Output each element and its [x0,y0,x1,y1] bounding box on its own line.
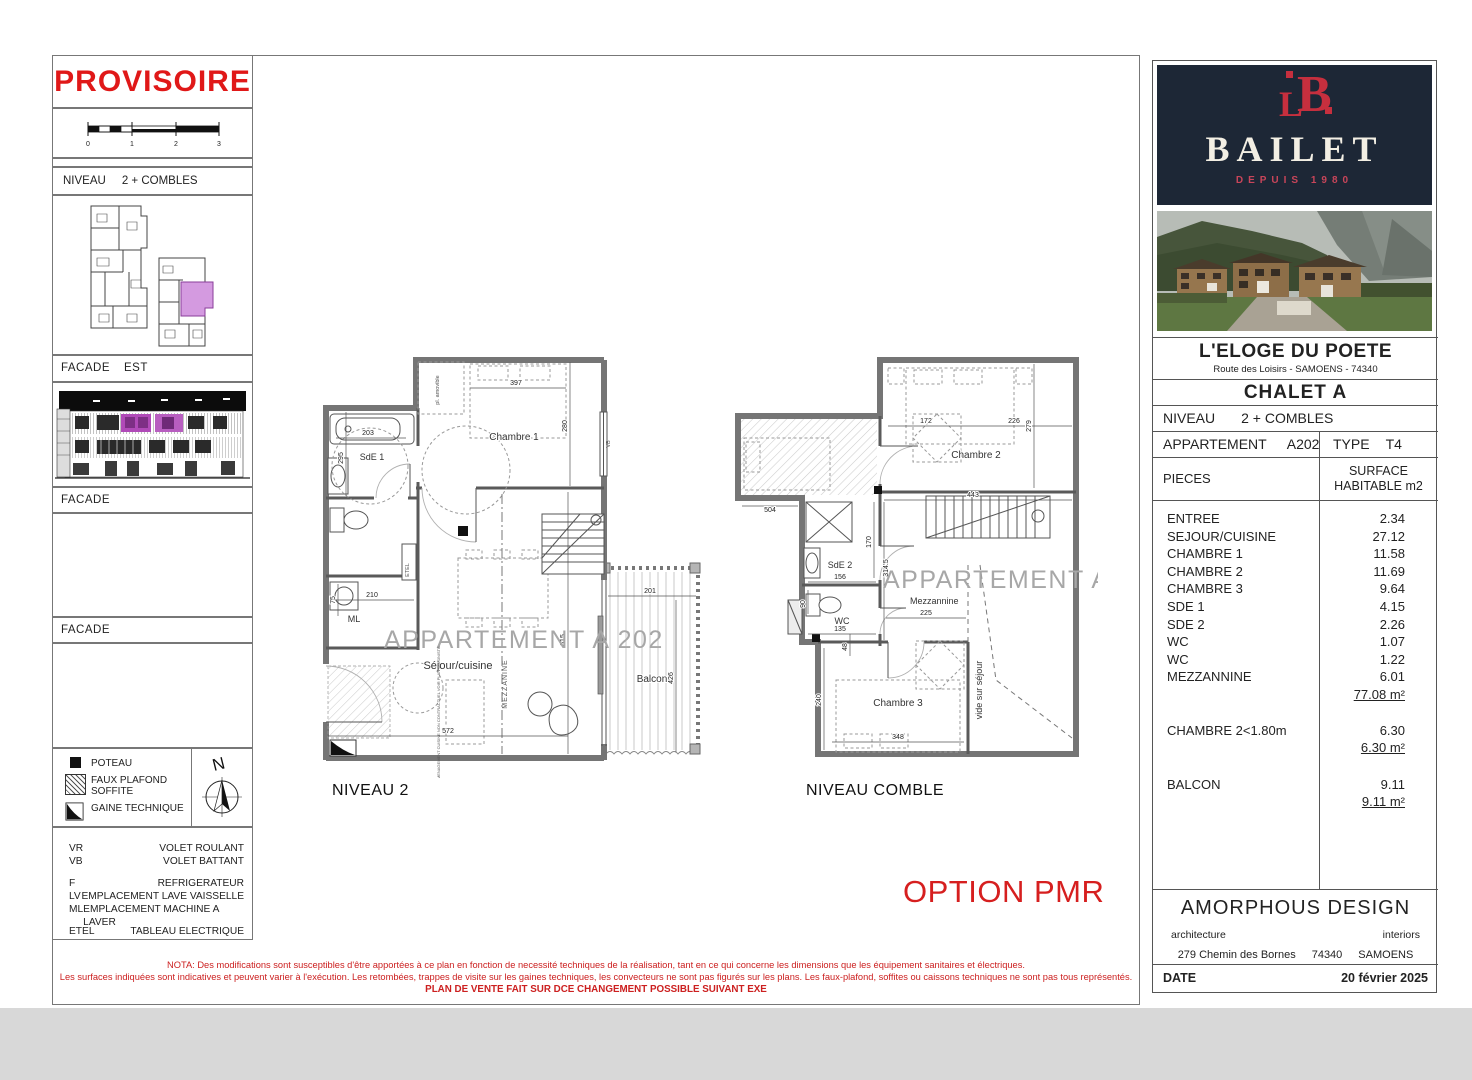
facade-est-label: FACADE [61,362,110,374]
dim: 48 [842,643,849,651]
niveau-row: NIVEAU2 + COMBLES [1153,405,1438,431]
apartment-label: APPARTEMENT [1163,436,1267,452]
designer-interiors: interiors [1383,929,1420,941]
abbrev-row: FREFRIGERATEUR [53,877,252,890]
room-label-sde2: SdE 2 [828,560,853,570]
designer-city: SAMOENS [1358,949,1413,961]
abbrev-key: VB [69,855,83,868]
dim: 348 [892,734,904,741]
table-row: WC1.07 [1153,633,1438,651]
dim: 504 [764,507,776,514]
dim: 90 [800,600,807,608]
niveau-value: 2 + COMBLES [1241,410,1333,426]
dim: 280 [562,420,569,432]
label-placard: pl. amovible [435,375,441,404]
abbrev-label: EMPLACEMENT MACHINE A LAVER [83,903,244,916]
room-label-sejour: Séjour/cuisine [423,660,492,672]
column-divider [1319,431,1320,500]
dim: 397 [510,380,522,387]
dim: 240 [816,694,823,706]
facade-2-empty-box [52,513,253,617]
north-compass-cell: N [191,749,253,826]
scale-tick-0: 0 [86,141,90,148]
scale-tick-2: 2 [174,141,178,148]
legend-label: GAINE TECHNIQUE [91,802,191,814]
abbrev-label: VOLET ROULANT [159,842,244,855]
attic-row: CHAMBRE 2<1.80m6.30 [1153,722,1438,740]
dim: 135 [834,626,846,633]
nota-footer: NOTA: Des modifications sont susceptible… [57,959,1135,995]
abbrev-row: ETELTABLEAU ELECTRIQUE [53,925,252,938]
date-value: 20 février 2025 [1341,965,1428,992]
legend-label: FAUX PLAFOND SOFFITE [91,774,191,797]
label-vide-sur-sejour: vide sur séjour [974,661,984,720]
room-label-wc: WC [835,616,850,626]
scale-tick-3: 3 [217,141,221,148]
dim: 226 [1008,418,1020,425]
table-row: SDE 22.26 [1153,616,1438,634]
plan-caption-comble: NIVEAU COMBLE [806,782,944,800]
project-name: L'ELOGE DU POETE [1153,341,1438,363]
facade-2-label: FACADE [61,494,110,506]
poteau-symbol [458,526,468,536]
type-label: TYPE [1333,436,1370,452]
abbrev-label: EMPLACEMENT LAVE VAISSELLE [82,890,245,903]
dim: 279 [1026,420,1033,432]
abbrev-row: LVEMPLACEMENT LAVE VAISSELLE [53,890,252,903]
provisoire-stamp: PROVISOIRE [52,55,253,108]
designer-zip: 74340 [1312,949,1343,961]
balcon-total-row: 9.11 m² [1153,793,1438,811]
room-label-chambre3: Chambre 3 [873,698,923,709]
option-pmr-label: OPTION PMR [903,874,1104,910]
key-plan-box [52,195,253,355]
logo-name: BAILET [1157,129,1432,169]
pieces-label: PIECES [1163,471,1211,486]
table-row: ENTREE2.34 [1153,510,1438,528]
facade-3-label: FACADE [61,624,110,636]
room-area-table: ENTREE2.34 SEJOUR/CUISINE27.12 CHAMBRE 1… [1153,500,1438,889]
facade-est-value: EST [124,362,148,374]
table-row: WC1.22 [1153,651,1438,669]
facade-est-label-box: FACADEEST [52,355,253,382]
facade-est-drawing-box [52,382,253,487]
table-row: CHAMBRE 111.58 [1153,545,1438,563]
label-ml: ML [348,614,361,624]
abbrev-label: VOLET BATTANT [163,855,244,868]
abbrev-row: VRVOLET ROULANT [53,842,252,855]
balcon-row: BALCON9.11 [1153,776,1438,794]
facade-est-drawing [53,383,252,486]
facade-3-empty-box [52,643,253,748]
designer-architecture: architecture [1171,929,1226,941]
watermark: APPARTEMENT A 202 [883,566,1098,594]
attic-total-row: 6.30 m² [1153,739,1438,757]
floor-plan-comble: 172 226 279 504 443 314.5 156 170 135 90… [728,350,1098,770]
legend-label: POTEAU [91,757,191,769]
project-row: L'ELOGE DU POETE Route des Loisirs - SAM… [1153,337,1438,379]
project-photo [1157,211,1432,331]
dim: 201 [644,588,656,595]
apartment-value: A202 [1287,436,1320,452]
legend-box: POTEAU FAUX PLAFOND SOFFITE GAINE TECHNI… [52,748,253,827]
dim: 426 [668,672,675,684]
poteau-icon [65,757,91,768]
dim: 443 [967,492,979,499]
abbrev-key: ETEL [69,925,94,938]
dim: 170 [866,536,873,548]
abbrev-key: VR [69,842,83,855]
dim: 295 [338,452,345,464]
table-row: MEZZANNINE6.01 [1153,668,1438,686]
legend-item-faux-plafond: FAUX PLAFOND SOFFITE [65,774,191,797]
level-value: 2 + COMBLES [122,175,198,187]
nota-line-3: PLAN DE VENTE FAIT SUR DCE CHANGEMENT PO… [57,984,1135,995]
abbrev-row: VBVOLET BATTANT [53,855,252,868]
bailet-monogram-icon: L B [1157,65,1432,129]
nota-line-1: NOTA: Des modifications sont susceptible… [57,959,1135,971]
facade-2-label-box: FACADE [52,487,253,513]
scale-tick-1: 1 [130,141,134,148]
designer-name: AMORPHOUS DESIGN [1153,897,1438,920]
abbrev-row: MLEMPLACEMENT MACHINE A LAVER [53,903,252,916]
abbrev-key: F [69,877,75,890]
level-label: NIVEAU [63,175,106,187]
total-habitable-row: 77.08 m² [1153,686,1438,704]
dim: 203 [362,430,374,437]
table-row: CHAMBRE 39.64 [1153,580,1438,598]
designer-block: AMORPHOUS DESIGN architectureinteriors 2… [1153,889,1438,964]
gaine-icon [65,802,91,821]
legend-items: POTEAU FAUX PLAFOND SOFFITE GAINE TECHNI… [53,749,191,826]
table-row: CHAMBRE 211.69 [1153,563,1438,581]
page-bottom-band [0,1008,1472,1080]
table-row: SDE 14.15 [1153,598,1438,616]
room-label-mezzannine: Mezzannine [910,596,959,606]
date-label: DATE [1163,965,1196,992]
table-row: SEJOUR/CUISINE27.12 [1153,528,1438,546]
label-etel: ETEL [405,563,411,577]
surface-label: SURFACEHABITABLE m2 [1319,464,1438,494]
room-label-sde1: SdE 1 [360,452,385,462]
room-label-chambre1: Chambre 1 [489,432,539,443]
column-divider [1319,500,1320,889]
level-label-box: NIVEAU2 + COMBLES [52,167,253,195]
north-arrow-icon: N [192,749,251,826]
logo-tagline: DEPUIS 1980 [1157,175,1432,186]
room-label-balcon: Balcon [637,674,668,685]
legend-item-gaine: GAINE TECHNIQUE [65,802,191,821]
niveau-label: NIVEAU [1163,410,1215,426]
provisoire-label: PROVISOIRE [54,65,251,98]
scale-bar: 0 1 2 3 [53,109,252,157]
scale-bar-box: 0 1 2 3 [52,108,253,158]
label-kitchen-note: AMENAGEMENT CUISINE NON CONTRACTUEL VOIR… [436,646,441,778]
title-block: L B BAILET DEPUIS 1980 L'ELOGE DU POE [1152,60,1437,993]
dim: 572 [442,728,454,735]
plan-caption-niveau2: NIVEAU 2 [332,782,409,800]
facade-3-label-box: FACADE [52,617,253,643]
hatch-icon [65,774,91,795]
apartment-row: APPARTEMENTA202 TYPET4 [1153,431,1438,457]
dim: 210 [366,592,378,599]
dim: 172 [920,418,932,425]
abbrev-label: TABLEAU ELECTRIQUE [130,925,244,938]
watermark: APPARTEMENT A 202 [384,626,664,654]
pieces-header-row: PIECES SURFACEHABITABLE m2 [1153,457,1438,500]
dim: 225 [920,610,932,617]
room-label-chambre2: Chambre 2 [951,450,1001,461]
designer-street: 279 Chemin des Bornes [1178,949,1296,961]
key-plan-drawing [53,196,252,354]
type-value: T4 [1386,436,1402,452]
abbrev-label: REFRIGERATEUR [158,877,244,890]
floor-plan-niveau-2: 203 295 397 280 210 75 615 572 201 426 A… [318,348,708,778]
date-row: DATE 20 février 2025 [1153,964,1438,992]
abbreviations-box: VRVOLET ROULANT VBVOLET BATTANT FREFRIGE… [52,827,253,940]
label-vb: VB [606,440,612,448]
monogram-b: B [1297,65,1332,124]
label-mezzanine-axis: MEZZANINE [502,659,509,708]
project-address: Route des Loisirs - SAMOENS - 74340 [1153,364,1438,375]
bailet-logo: L B BAILET DEPUIS 1980 [1157,65,1432,205]
north-letter: N [210,753,227,774]
nota-line-2: Les surfaces indiquées sont indicatives … [57,971,1135,983]
abbrev-key: ML [69,903,83,916]
dim: 156 [834,574,846,581]
abbrev-key: LV [69,890,81,903]
chalet-row: CHALET A [1153,379,1438,405]
legend-item-poteau: POTEAU [65,757,191,769]
dim: 75 [330,596,337,604]
spacer-box [52,158,253,167]
